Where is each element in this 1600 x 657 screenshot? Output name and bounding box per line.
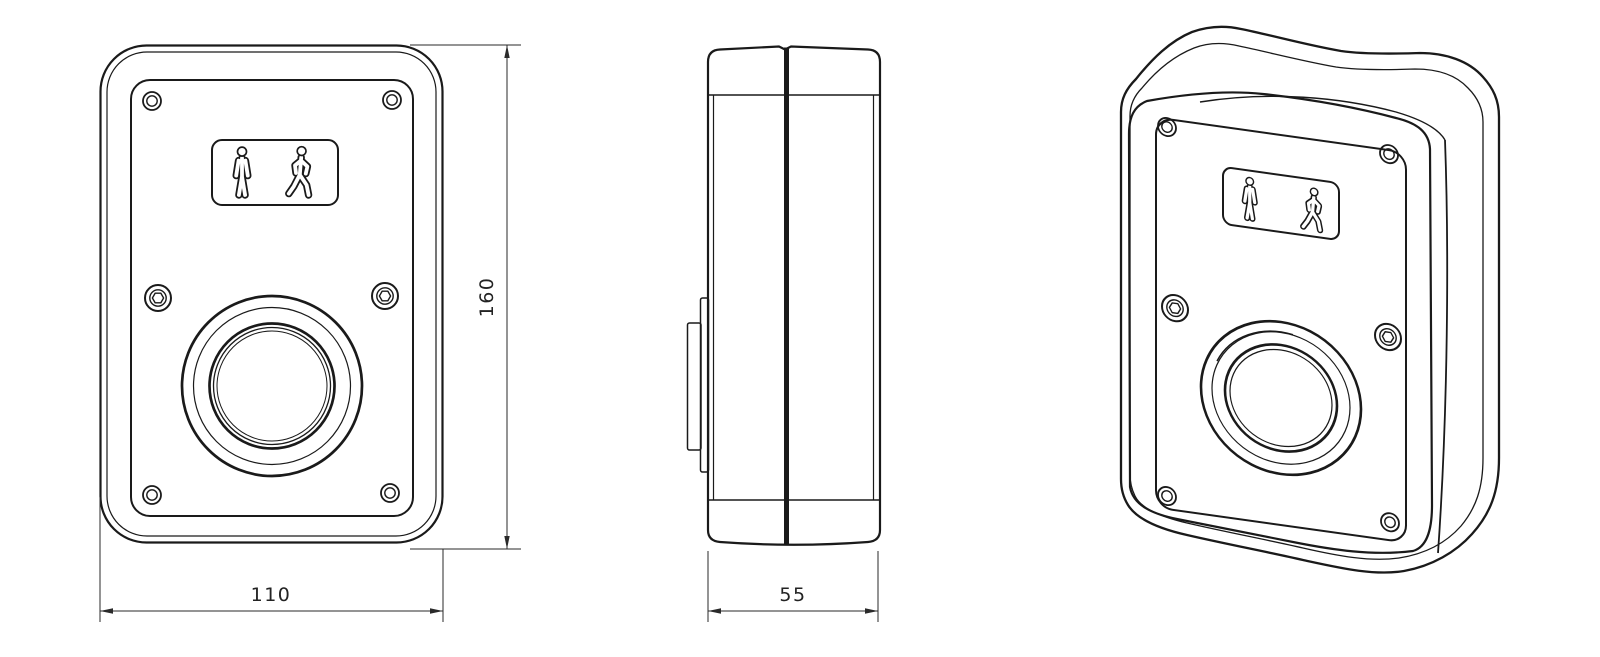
button-cap-inner xyxy=(217,331,327,441)
housing-chamfer-line xyxy=(107,52,436,536)
faceplate-outline xyxy=(131,80,413,516)
housing-outline xyxy=(101,46,443,543)
width-dimension-label: 110 xyxy=(251,584,292,606)
hex-screw-right xyxy=(372,283,398,309)
screw-bottom-right xyxy=(381,484,399,502)
technical-drawing-page: 110 160 55 xyxy=(0,0,1600,657)
side-view xyxy=(688,47,881,546)
screw-top-right xyxy=(383,91,401,109)
iso-hex-screw-left xyxy=(1162,293,1188,323)
hex-screw-left xyxy=(145,285,171,311)
technical-drawing-canvas: 110 160 55 xyxy=(0,0,1600,657)
iso-button-cap-inner xyxy=(1230,343,1332,453)
height-dimension: 160 xyxy=(410,45,521,549)
button-cap-outer xyxy=(210,324,335,449)
button-cap-mid xyxy=(214,328,331,445)
screw-top-left xyxy=(143,92,161,110)
iso-screw-top-right xyxy=(1380,144,1398,165)
iso-front-face-contents xyxy=(1156,113,1406,543)
iso-button-cap-outer xyxy=(1225,337,1337,459)
arrowhead-bottom xyxy=(504,536,509,549)
iso-hex-screw-right xyxy=(1375,322,1401,352)
standing-person-icon xyxy=(236,147,248,195)
push-button xyxy=(182,296,362,476)
iso-parting-line xyxy=(1438,140,1447,553)
arrowhead-left xyxy=(708,608,721,613)
iso-push-button xyxy=(1201,311,1361,485)
height-dimension-label: 160 xyxy=(476,277,498,318)
arrowhead-right xyxy=(430,608,443,613)
walking-person-icon xyxy=(289,147,309,195)
side-housing-outline xyxy=(708,47,880,545)
arrowhead-right xyxy=(865,608,878,613)
depth-dimension: 55 xyxy=(708,551,878,622)
arrowhead-left xyxy=(100,608,113,613)
isometric-view xyxy=(1121,27,1499,573)
screw-bottom-left xyxy=(143,486,161,504)
arrowhead-top xyxy=(504,45,509,58)
iso-faceplate-outline xyxy=(1156,118,1406,543)
walking-person-icon xyxy=(1303,187,1320,230)
standing-person-icon xyxy=(1245,177,1255,219)
depth-dimension-label: 55 xyxy=(779,584,806,606)
iso-screw-bottom-right xyxy=(1381,512,1399,533)
front-view xyxy=(101,46,443,543)
pictogram-plate xyxy=(212,140,338,205)
side-button-profile xyxy=(688,323,702,450)
